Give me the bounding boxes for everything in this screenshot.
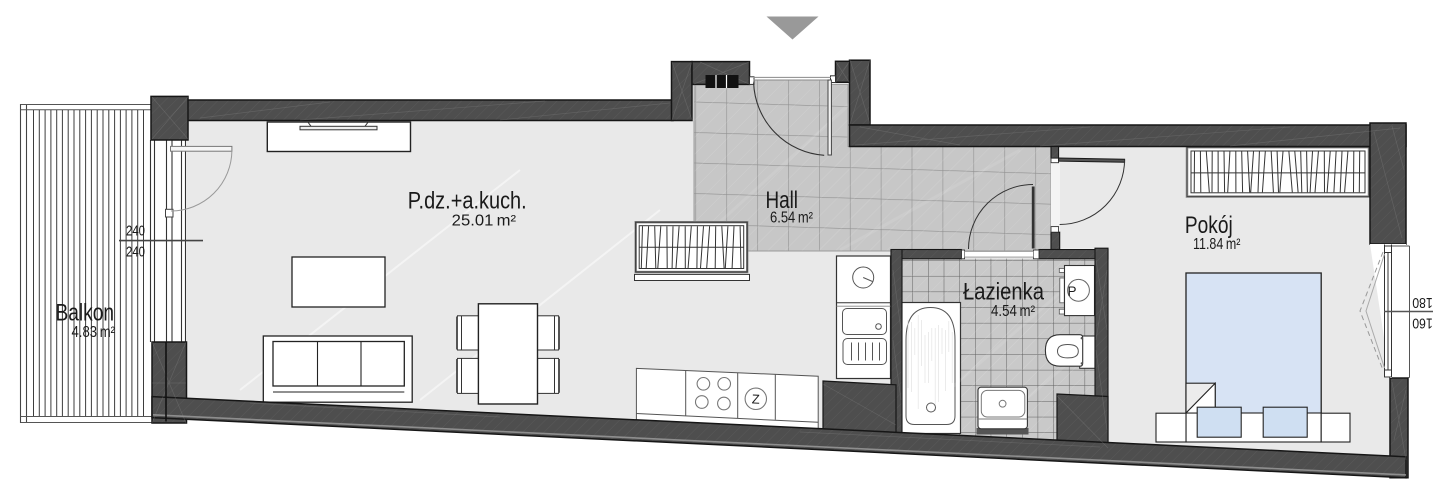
svg-text:Łazienka: Łazienka <box>963 279 1044 306</box>
svg-text:11.84 m²: 11.84 m² <box>1193 236 1240 253</box>
svg-text:6.54 m²: 6.54 m² <box>770 209 813 226</box>
svg-text:P.dz.+a.kuch.: P.dz.+a.kuch. <box>408 187 527 214</box>
svg-text:240: 240 <box>126 243 145 260</box>
svg-text:P: P <box>1068 284 1077 299</box>
svg-text:Z: Z <box>751 391 760 406</box>
svg-text:180: 180 <box>1412 294 1432 311</box>
svg-text:Pokój: Pokój <box>1185 212 1233 239</box>
svg-text:25.01 m²: 25.01 m² <box>452 213 516 230</box>
svg-text:Balkon: Balkon <box>56 299 115 326</box>
svg-text:4.54 m²: 4.54 m² <box>991 303 1035 320</box>
svg-text:160: 160 <box>1412 315 1432 332</box>
svg-text:4.83 m²: 4.83 m² <box>72 324 116 341</box>
svg-text:240: 240 <box>126 223 145 240</box>
